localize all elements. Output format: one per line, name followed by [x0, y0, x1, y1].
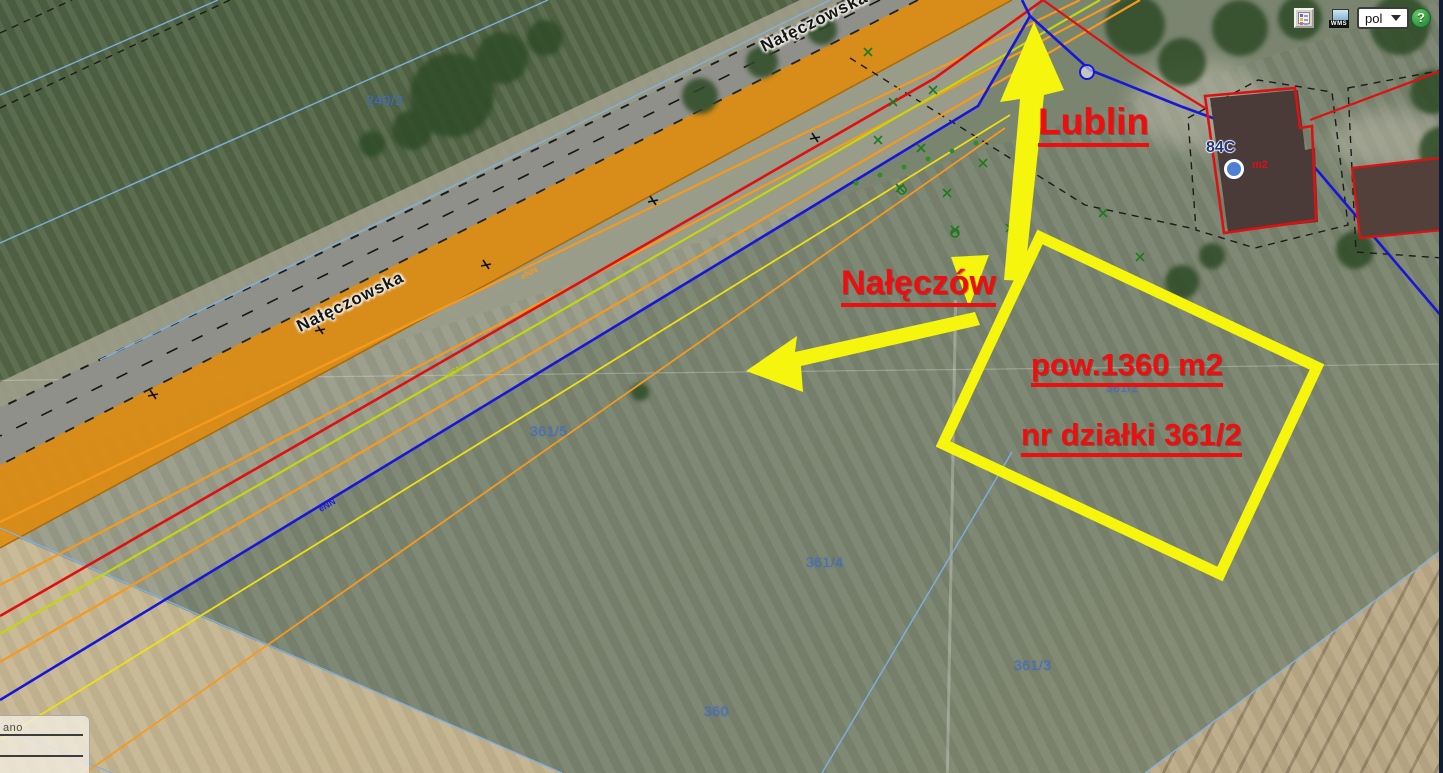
hedge-dots	[854, 141, 979, 186]
info-panel-line	[0, 755, 83, 757]
annotation-area: pow.1360 m2	[1031, 349, 1223, 387]
help-button[interactable]: ?	[1411, 8, 1431, 28]
building-label: m2	[1252, 159, 1268, 171]
legend-icon	[1298, 12, 1310, 24]
map-canvas[interactable]: Nałęczowska Nałęczowska 240/2 361/5 361/…	[0, 0, 1443, 773]
address-point-icon	[1224, 159, 1244, 179]
window-edge-strip	[1439, 0, 1443, 773]
legend-icon-glyph	[1300, 14, 1308, 17]
info-panel-text: ano	[3, 722, 23, 734]
legend-icon-glyph	[1300, 22, 1308, 25]
wms-button[interactable]: WMS	[1329, 9, 1351, 29]
help-icon: ?	[1417, 10, 1425, 25]
language-select-value: pol	[1365, 11, 1382, 26]
language-select[interactable]: pol	[1357, 7, 1409, 29]
map-overlay-graphics	[0, 0, 1443, 773]
legend-button[interactable]	[1294, 8, 1314, 28]
annotation-parcel-number: nr działki 361/2	[1021, 419, 1242, 457]
parcel-label-240-2: 240/2	[366, 92, 404, 108]
wms-label: WMS	[1329, 20, 1349, 28]
parcel-label-361-5: 361/5	[530, 423, 568, 439]
annotation-lublin: Lublin	[1038, 103, 1149, 147]
info-panel: ano	[0, 715, 90, 773]
legend-icon-glyph	[1300, 18, 1308, 21]
info-panel-line	[0, 734, 83, 736]
address-label-84c: 84C	[1206, 139, 1235, 157]
parcel-label-360: 360	[704, 703, 729, 719]
parcel-highlight-rectangle	[943, 237, 1317, 574]
annotation-naleczow: Nałęczów	[841, 266, 996, 307]
parcel-label-361-3: 361/3	[1014, 657, 1052, 673]
arrow-left-naleczow	[746, 312, 980, 392]
chevron-down-icon	[1391, 15, 1401, 21]
parcel-label-361-4: 361/4	[806, 554, 844, 570]
